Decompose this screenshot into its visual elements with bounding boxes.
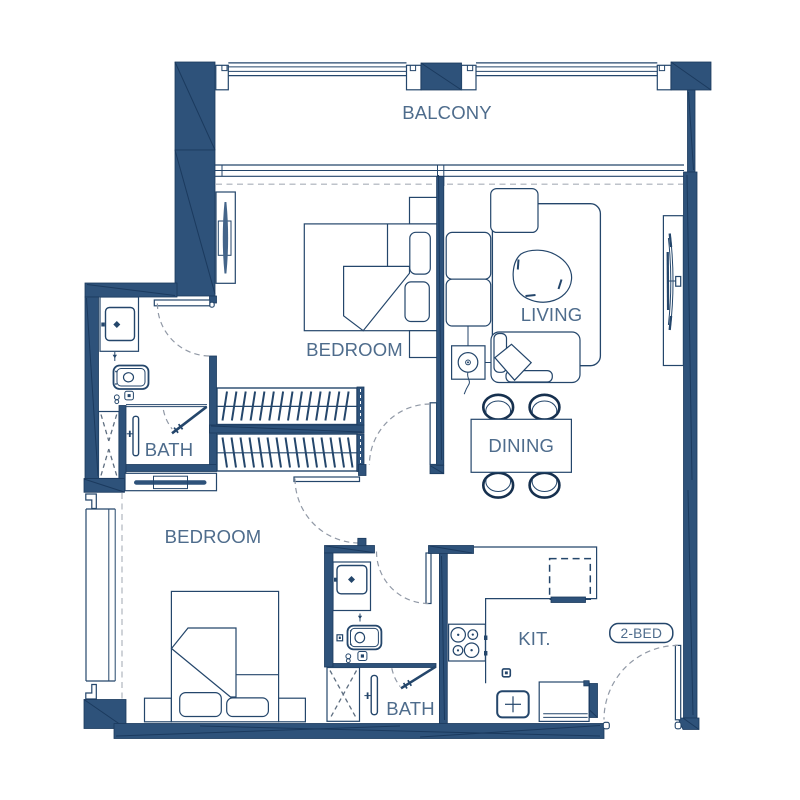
svg-text:DINING: DINING [488,435,554,456]
svg-text:BALCONY: BALCONY [402,102,491,123]
svg-text:2-BED: 2-BED [620,626,662,641]
svg-text:KIT.: KIT. [518,628,550,649]
svg-text:BATH: BATH [386,698,435,719]
svg-text:LIVING: LIVING [521,304,583,325]
svg-text:BEDROOM: BEDROOM [165,526,262,547]
svg-text:BATH: BATH [145,439,194,460]
svg-text:BEDROOM: BEDROOM [306,339,403,360]
